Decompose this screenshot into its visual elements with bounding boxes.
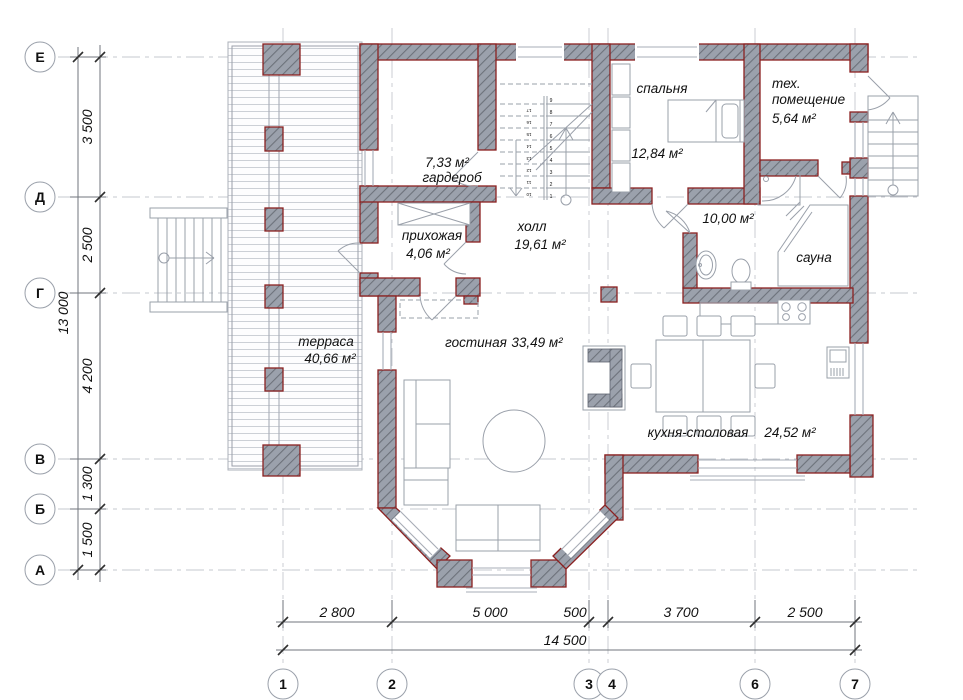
dim-left-4: 1 500 <box>79 522 95 557</box>
stair-up-arrow <box>559 128 573 195</box>
dim-left-1: 2 500 <box>79 227 95 263</box>
room-label-terrace: терраса <box>298 334 354 349</box>
axis-col-1: 2 <box>388 676 396 692</box>
tech-room-door <box>818 176 846 198</box>
dim-bottom-total: 14 500 <box>544 632 587 648</box>
axis-col-5: 7 <box>851 676 859 692</box>
sink <box>696 251 716 279</box>
shower <box>758 172 800 205</box>
dim-bottom-1: 5 000 <box>472 604 507 620</box>
dim-bottom-4: 2 500 <box>786 604 822 620</box>
dimension-chain-left: 3 500 2 500 4 200 1 300 1 500 13 000 <box>55 45 106 582</box>
stair-step-numbers: 1 2 3 4 5 6 7 8 9 10 11 12 13 14 15 16 1… <box>526 98 553 200</box>
sofa-living <box>404 380 450 505</box>
room-label-tech-2: помещение <box>772 92 845 107</box>
axis-row-0: Е <box>35 49 44 65</box>
area-label-bathroom: 10,00 м² <box>702 211 754 226</box>
sofa-bay <box>456 505 540 551</box>
axis-col-0: 1 <box>279 676 287 692</box>
dim-left-total: 13 000 <box>55 291 71 334</box>
stair-break-line <box>528 104 592 170</box>
step-number: 8 <box>550 110 553 116</box>
step-number: 9 <box>550 98 553 104</box>
fridge <box>827 347 849 378</box>
room-label-sauna: сауна <box>796 250 832 265</box>
step-number: 1 <box>550 194 553 200</box>
terrace <box>228 42 362 476</box>
exterior-right-door <box>868 76 890 110</box>
round-table <box>483 410 545 472</box>
area-label-terrace: 40,66 м² <box>304 351 356 366</box>
room-label-hall: холл <box>516 219 546 234</box>
room-label-tech-1: тех. <box>772 76 801 91</box>
bedroom-closet <box>612 64 630 192</box>
sauna-bench <box>778 205 848 286</box>
fireplace <box>583 346 625 410</box>
dimension-chain-bottom: 2 800 5 000 500 3 700 2 500 14 500 <box>276 600 862 656</box>
axis-col-2: 3 <box>585 676 593 692</box>
step-number: 17 <box>526 108 532 113</box>
entry-wardrobe-symbol <box>398 203 470 225</box>
step-number: 15 <box>526 132 532 137</box>
axis-row-1: Д <box>35 189 45 205</box>
axis-row-2: Г <box>36 285 44 301</box>
bedroom-door <box>652 204 688 228</box>
step-number: 12 <box>526 168 532 173</box>
stove <box>778 300 810 324</box>
step-number: 7 <box>550 122 553 128</box>
step-number: 14 <box>526 144 532 149</box>
exterior-stair-right <box>868 96 918 196</box>
area-label-wardrobe: 7,33 м² <box>425 155 469 170</box>
area-label-bedroom: 12,84 м² <box>631 146 683 161</box>
room-label-wardrobe: гардероб <box>422 170 482 185</box>
dim-bottom-2: 500 <box>563 604 587 620</box>
dim-left-3: 1 300 <box>79 466 95 501</box>
axis-col-4: 6 <box>751 676 759 692</box>
area-label-tech: 5,64 м² <box>772 111 816 126</box>
exterior-stair-left <box>150 208 227 312</box>
dim-bottom-3: 3 700 <box>663 604 698 620</box>
area-label-entry: 4,06 м² <box>406 246 450 261</box>
room-label-living: гостиная <box>445 335 507 350</box>
axis-bubbles-bottom: 1 2 3 4 6 7 <box>268 669 870 699</box>
step-number: 13 <box>526 156 532 161</box>
axis-row-5: А <box>35 562 45 578</box>
axis-col-3: 4 <box>608 676 616 692</box>
bed <box>668 100 744 142</box>
toilet <box>731 259 751 290</box>
step-number: 6 <box>550 134 553 140</box>
floor-plan-page: 1 2 3 4 5 6 7 8 9 10 11 12 13 14 15 16 1… <box>0 0 963 700</box>
step-number: 2 <box>550 182 553 188</box>
step-number: 3 <box>550 170 553 176</box>
step-number: 10 <box>526 192 532 197</box>
room-label-entry: прихожая <box>402 228 462 243</box>
stair-up-arrow <box>886 112 900 185</box>
main-staircase: 1 2 3 4 5 6 7 8 9 10 11 12 13 14 15 16 1… <box>500 84 592 205</box>
step-number: 4 <box>550 158 553 164</box>
dim-bottom-0: 2 800 <box>318 604 354 620</box>
step-number: 11 <box>526 180 531 185</box>
structural-column <box>601 287 617 302</box>
floor-plan-drawing: 1 2 3 4 5 6 7 8 9 10 11 12 13 14 15 16 1… <box>0 0 963 700</box>
dining-table <box>656 340 750 412</box>
axis-bubbles-left: Е Д Г В Б А <box>25 42 55 585</box>
area-label-living: 33,49 м² <box>511 335 563 350</box>
room-label-kitchen: кухня-столовая <box>648 425 749 440</box>
step-number: 16 <box>526 120 532 125</box>
dim-left-2: 4 200 <box>79 358 95 393</box>
step-number: 5 <box>550 146 553 152</box>
room-label-bedroom: спальня <box>637 81 688 96</box>
axis-row-4: Б <box>35 501 45 517</box>
axis-row-3: В <box>35 451 45 467</box>
dim-left-0: 3 500 <box>79 109 95 144</box>
area-label-hall: 19,61 м² <box>514 237 566 252</box>
area-label-kitchen: 24,52 м² <box>763 425 816 440</box>
